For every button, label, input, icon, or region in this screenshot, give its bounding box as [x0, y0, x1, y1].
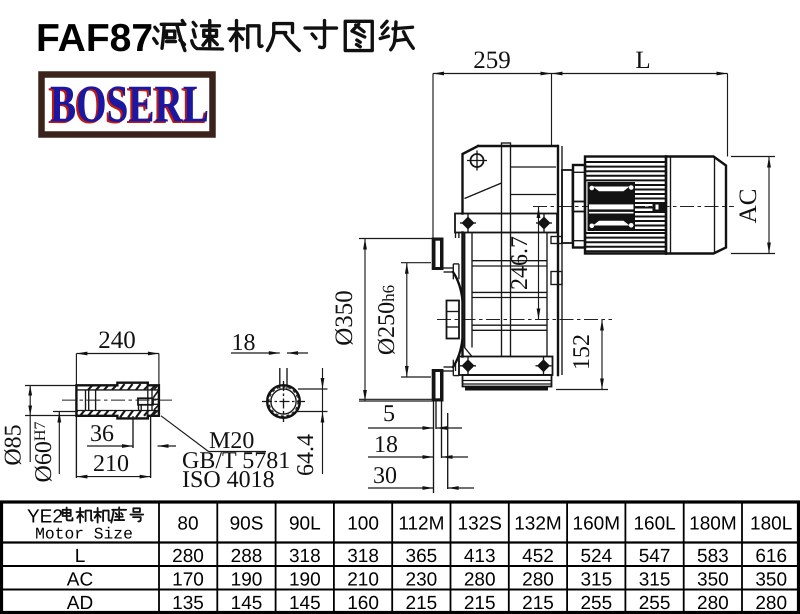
svg-text:30: 30 — [373, 463, 397, 489]
svg-text:318: 318 — [347, 546, 379, 567]
svg-text:315: 315 — [639, 570, 671, 591]
svg-text:152: 152 — [569, 334, 595, 370]
svg-text:18: 18 — [232, 330, 256, 356]
svg-text:215: 215 — [522, 593, 554, 614]
svg-text:135: 135 — [172, 593, 204, 614]
svg-text:AD: AD — [67, 593, 93, 614]
svg-text:365: 365 — [406, 546, 438, 567]
svg-text:160M: 160M — [573, 514, 621, 535]
svg-text:210: 210 — [93, 451, 129, 477]
svg-text:190: 190 — [289, 570, 321, 591]
svg-text:36: 36 — [90, 421, 114, 447]
svg-text:288: 288 — [231, 546, 263, 567]
svg-text:Ø85: Ø85 — [1, 424, 27, 465]
svg-text:350: 350 — [755, 570, 787, 591]
svg-text:180M: 180M — [689, 514, 737, 535]
svg-text:452: 452 — [522, 546, 554, 567]
svg-text:259: 259 — [473, 47, 511, 74]
svg-text:5: 5 — [383, 401, 395, 427]
svg-text:255: 255 — [639, 593, 671, 614]
svg-text:230: 230 — [406, 570, 438, 591]
svg-text:90L: 90L — [289, 514, 321, 535]
svg-text:280: 280 — [522, 570, 554, 591]
svg-text:145: 145 — [231, 593, 263, 614]
svg-text:Ø350: Ø350 — [331, 290, 358, 346]
svg-text:318: 318 — [289, 546, 321, 567]
svg-text:524: 524 — [580, 546, 612, 567]
svg-text:583: 583 — [697, 546, 729, 567]
svg-text:100: 100 — [347, 514, 379, 535]
svg-text:255: 255 — [580, 593, 612, 614]
svg-text:18: 18 — [374, 432, 398, 458]
svg-text:215: 215 — [464, 593, 496, 614]
svg-text:L: L — [635, 47, 650, 74]
svg-text:L: L — [75, 546, 86, 567]
svg-text:160L: 160L — [633, 514, 675, 535]
svg-text:132S: 132S — [458, 514, 502, 535]
svg-text:132M: 132M — [514, 514, 562, 535]
svg-text:ISO 4018: ISO 4018 — [182, 467, 275, 493]
svg-text:280: 280 — [755, 593, 787, 614]
svg-text:240: 240 — [98, 327, 136, 354]
svg-text:170: 170 — [172, 570, 204, 591]
svg-text:280: 280 — [464, 570, 496, 591]
svg-text:215: 215 — [406, 593, 438, 614]
svg-text:210: 210 — [347, 570, 379, 591]
svg-text:AC: AC — [735, 189, 762, 224]
svg-text:180L: 180L — [750, 514, 792, 535]
svg-text:BOSERL: BOSERL — [50, 76, 209, 134]
svg-text:112M: 112M — [398, 514, 444, 535]
svg-text:AC: AC — [67, 570, 93, 591]
svg-text:145: 145 — [289, 593, 321, 614]
svg-text:Motor Size: Motor Size — [35, 525, 133, 544]
svg-text:350: 350 — [697, 570, 729, 591]
svg-text:190: 190 — [231, 570, 263, 591]
svg-text:547: 547 — [639, 546, 671, 567]
svg-text:160: 160 — [347, 593, 379, 614]
svg-text:413: 413 — [464, 546, 496, 567]
svg-text:90S: 90S — [230, 514, 264, 535]
svg-text:64.4: 64.4 — [293, 434, 319, 476]
svg-text:616: 616 — [755, 546, 787, 567]
svg-text:315: 315 — [580, 570, 612, 591]
svg-text:FAF87: FAF87 — [36, 17, 153, 60]
svg-text:80: 80 — [177, 514, 198, 535]
svg-text:280: 280 — [172, 546, 204, 567]
svg-text:280: 280 — [697, 593, 729, 614]
